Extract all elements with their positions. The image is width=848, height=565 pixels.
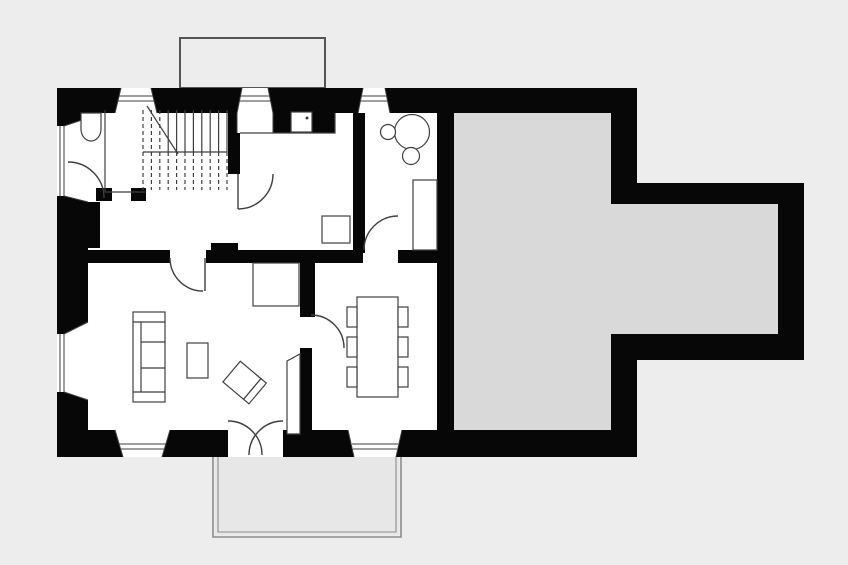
terrace-slab	[215, 457, 399, 535]
house-wing-divider-wall	[437, 113, 454, 430]
dining-chair	[398, 337, 408, 357]
stool-left	[381, 125, 396, 140]
window-stair-hall	[115, 88, 157, 113]
extension-top-wall	[611, 183, 804, 204]
sofa	[133, 312, 165, 402]
terrace	[213, 457, 401, 537]
dining-chair	[347, 307, 357, 327]
wing-right-lower-wall	[611, 360, 637, 430]
built-in-closet	[413, 180, 437, 250]
dining-chair	[398, 367, 408, 387]
toilet	[81, 113, 101, 141]
dining-chair	[347, 367, 357, 387]
kitchen-sink	[291, 112, 312, 132]
hall-wall-step	[211, 243, 238, 263]
window-bottom-dining	[348, 430, 402, 457]
dining-chair	[347, 337, 357, 357]
central-wall-lower	[300, 348, 312, 432]
open-door-panel	[287, 354, 300, 434]
dining-set	[347, 297, 408, 397]
wing-right-upper-wall	[611, 113, 637, 183]
living-room-top-wall	[80, 250, 170, 263]
dining-top-right-wall	[398, 250, 437, 263]
stair-hall-stub-right	[131, 188, 146, 201]
kitchen-appliance	[322, 216, 350, 243]
window-upper-room	[358, 88, 390, 113]
fireplace	[253, 263, 299, 306]
dining-table	[357, 297, 398, 397]
round-table	[395, 115, 430, 150]
stool-bottom	[403, 148, 420, 165]
central-wall-upper	[300, 258, 315, 317]
floor-plan-drawing	[0, 0, 848, 565]
kitchen-right-wall	[353, 113, 365, 253]
floor-plan-canvas	[0, 0, 848, 565]
dining-chair	[398, 307, 408, 327]
window-bottom-living	[115, 430, 170, 457]
extension-bottom-wall	[611, 334, 804, 360]
coffee-table	[187, 343, 208, 378]
left-wall-pier	[88, 212, 100, 248]
window-kitchen	[237, 88, 273, 133]
extension-right-wall	[778, 183, 804, 360]
roof-annex-outline	[180, 38, 325, 88]
